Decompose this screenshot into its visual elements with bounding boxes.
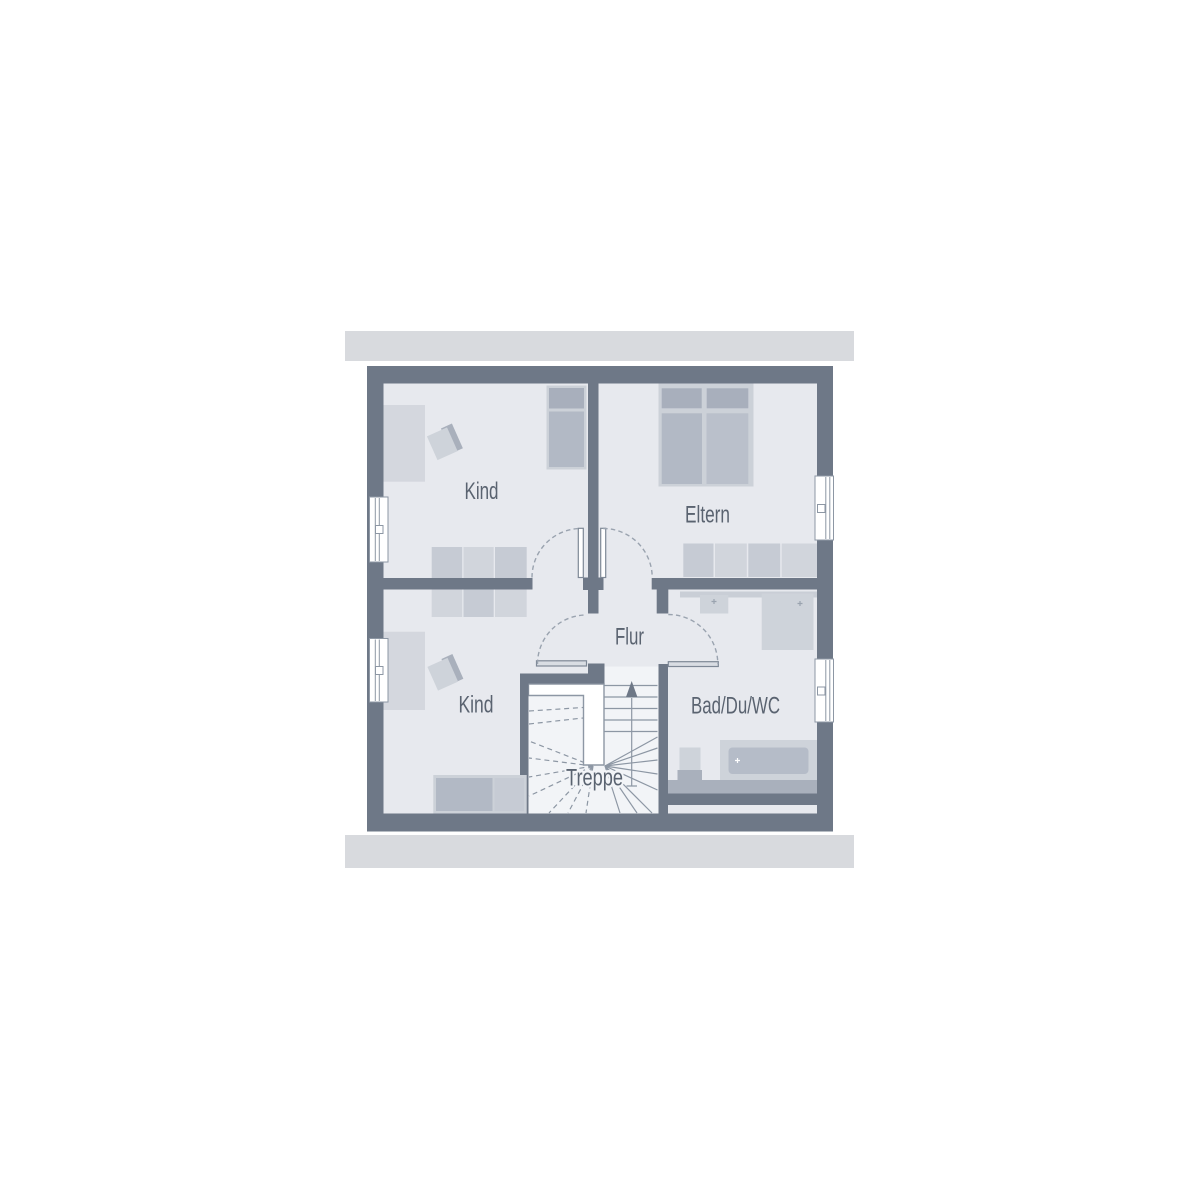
wardrobe	[432, 547, 527, 578]
room-label-bad: Bad/Du/WC	[691, 693, 780, 720]
wall-pier	[588, 590, 599, 614]
wall-stair-right	[659, 664, 669, 814]
window-left-top	[370, 497, 389, 562]
wardrobe	[683, 544, 817, 578]
desk	[384, 632, 426, 710]
double-bed	[659, 384, 754, 487]
toilet	[678, 748, 703, 785]
door-leaf-bad	[668, 662, 718, 667]
window-right-top	[815, 476, 834, 540]
room-label-treppe: Treppe	[566, 765, 623, 792]
window-right-bottom	[815, 659, 834, 722]
window-left-bottom	[370, 639, 389, 703]
room-label-kind-bottom: Kind	[459, 692, 494, 719]
wall-junction-block	[583, 578, 604, 591]
wall-stair-stub	[588, 664, 605, 684]
wall-bath-bottom	[668, 794, 817, 806]
room-label-kind-top: Kind	[465, 478, 499, 505]
roof-band-top	[345, 331, 854, 361]
washbasin	[700, 595, 728, 614]
wall-divider-kind-eltern	[588, 384, 599, 578]
wall-left-segment	[384, 578, 533, 590]
wall-bath-stub	[657, 590, 669, 614]
desk	[384, 405, 426, 482]
bed	[547, 386, 587, 470]
wall-right-segment	[652, 578, 817, 590]
door-leaf-eltern	[601, 528, 606, 577]
door-leaf-kind-top	[578, 528, 583, 577]
room-label-eltern: Eltern	[685, 502, 730, 529]
roof-band-bottom	[345, 835, 854, 868]
door-leaf-kind-bottom	[537, 661, 587, 666]
shower	[762, 594, 814, 651]
floor-plan: Kind Eltern Flur Kind Bad/Du/WC Treppe	[0, 0, 1200, 1200]
wardrobe	[432, 590, 527, 618]
room-label-flur: Flur	[615, 624, 644, 651]
bathtub	[720, 740, 817, 780]
bed	[433, 775, 526, 814]
